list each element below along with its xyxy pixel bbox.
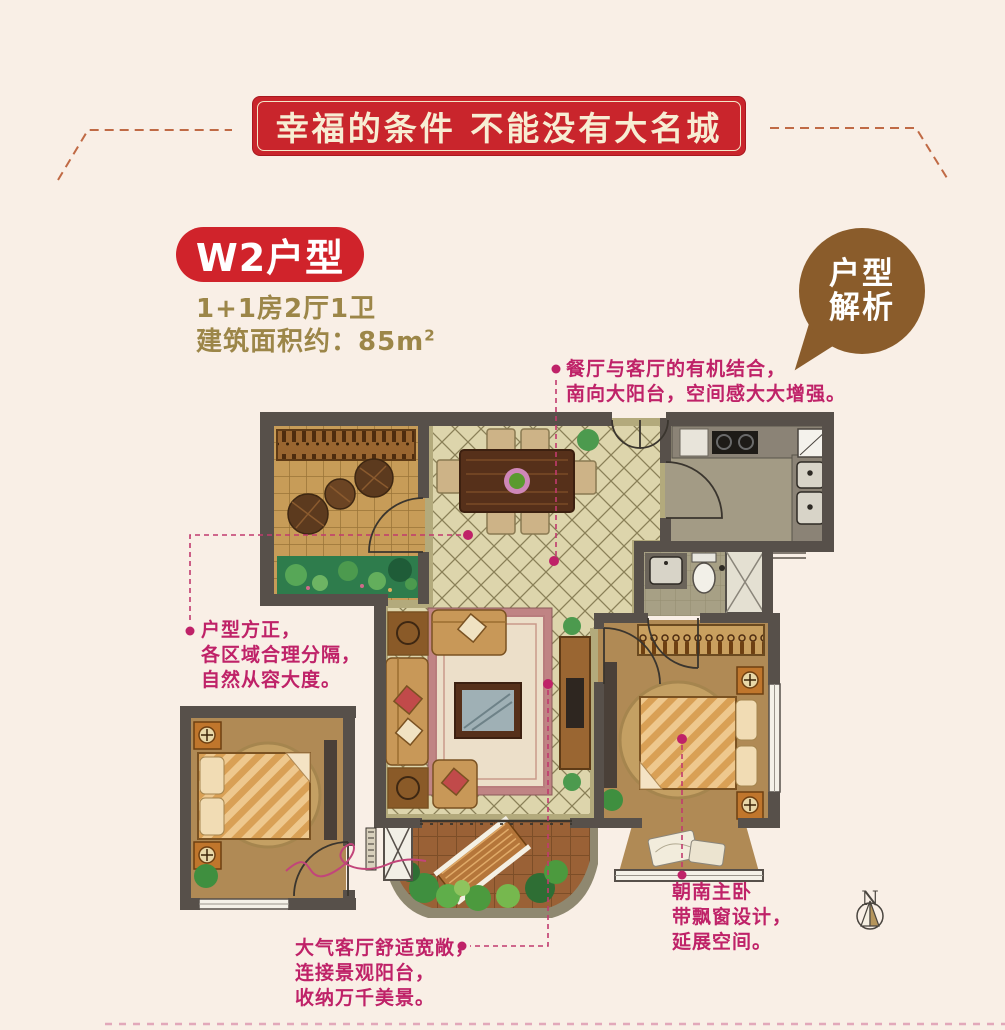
radiator <box>366 828 376 870</box>
banner-left-dash <box>58 130 232 180</box>
dot-dining-bullet <box>552 365 561 374</box>
annotation-living: 大气客厅舒适宽敞， 连接景观阳台， 收纳万千美景。 <box>295 936 475 1011</box>
banner-right-dash <box>770 128 947 178</box>
bubble-line-1: 户型 <box>829 257 895 291</box>
annotation-line: 收纳万千美景。 <box>295 986 475 1011</box>
annotation-line: 南向大阳台，空间感大大增强。 <box>566 382 846 407</box>
kitchen-cabinet <box>680 429 708 456</box>
toilet <box>692 553 716 593</box>
annotation-line: 自然从容大度。 <box>201 668 361 693</box>
unit-area-sup: 2 <box>424 326 435 344</box>
annotation-line: 各区域合理分隔， <box>201 643 361 668</box>
balcony <box>384 816 598 918</box>
annotation-layout: 户型方正， 各区域合理分隔， 自然从容大度。 <box>201 618 361 693</box>
bedroom2-plant <box>194 864 218 888</box>
shower <box>726 551 764 613</box>
bubble-line-2: 解析 <box>829 291 895 325</box>
bedroom2-bed <box>198 753 310 839</box>
coffee-table <box>455 683 521 738</box>
annotation-line: 朝南主卧 <box>672 880 792 905</box>
analysis-bubble: 户型 解析 <box>799 228 925 354</box>
stove <box>712 431 758 454</box>
annotation-line: 延展空间。 <box>672 930 792 955</box>
annotation-line: 带飘窗设计， <box>672 905 792 930</box>
annotation-dining: 餐厅与客厅的有机结合， 南向大阳台，空间感大大增强。 <box>566 357 846 407</box>
annotation-line: 连接景观阳台， <box>295 961 475 986</box>
annotation-line: 户型方正， <box>201 618 361 643</box>
master-plant <box>601 789 623 811</box>
kitchen-sink <box>797 462 824 524</box>
plant-tv-top <box>563 617 581 635</box>
unit-title: W2户型 <box>196 227 344 282</box>
annotation-line: 餐厅与客厅的有机结合， <box>566 357 846 382</box>
annotation-master: 朝南主卧 带飘窗设计， 延展空间。 <box>672 880 792 955</box>
compass-label: N <box>858 886 882 910</box>
room-master-bedroom <box>598 620 773 822</box>
annotation-line: 大气客厅舒适宽敞， <box>295 936 475 961</box>
unit-title-pill: W2户型 <box>176 227 364 282</box>
master-tv-panel <box>604 662 617 788</box>
bay-window <box>615 822 763 881</box>
study-garden <box>277 556 418 598</box>
unit-area: 建筑面积约：85m2 <box>196 321 436 358</box>
banner-text: 幸福的条件 不能没有大名城 <box>276 102 723 150</box>
poster: 幸福的条件 不能没有大名城 W2户型 1+1房2厅1卫 建筑面积约：85m2 户… <box>0 0 1005 1030</box>
room-kitchen <box>665 418 830 558</box>
unit-layout: 1+1房2厅1卫 <box>196 288 376 325</box>
plant-tv-bottom <box>563 773 581 791</box>
bathroom-valve <box>719 565 725 571</box>
banner: 幸福的条件 不能没有大名城 <box>253 97 745 155</box>
room-bathroom <box>640 548 768 616</box>
bedroom2-tv-panel <box>324 740 337 840</box>
dining-table <box>460 450 574 512</box>
master-wardrobe <box>638 625 764 655</box>
study-bookshelf <box>277 430 415 460</box>
room-bedroom-2 <box>188 712 346 900</box>
room-study <box>265 418 425 600</box>
unit-area-label: 建筑面积约：85m <box>196 327 424 357</box>
tv-cabinet <box>560 637 590 769</box>
plant-dining <box>577 429 599 451</box>
